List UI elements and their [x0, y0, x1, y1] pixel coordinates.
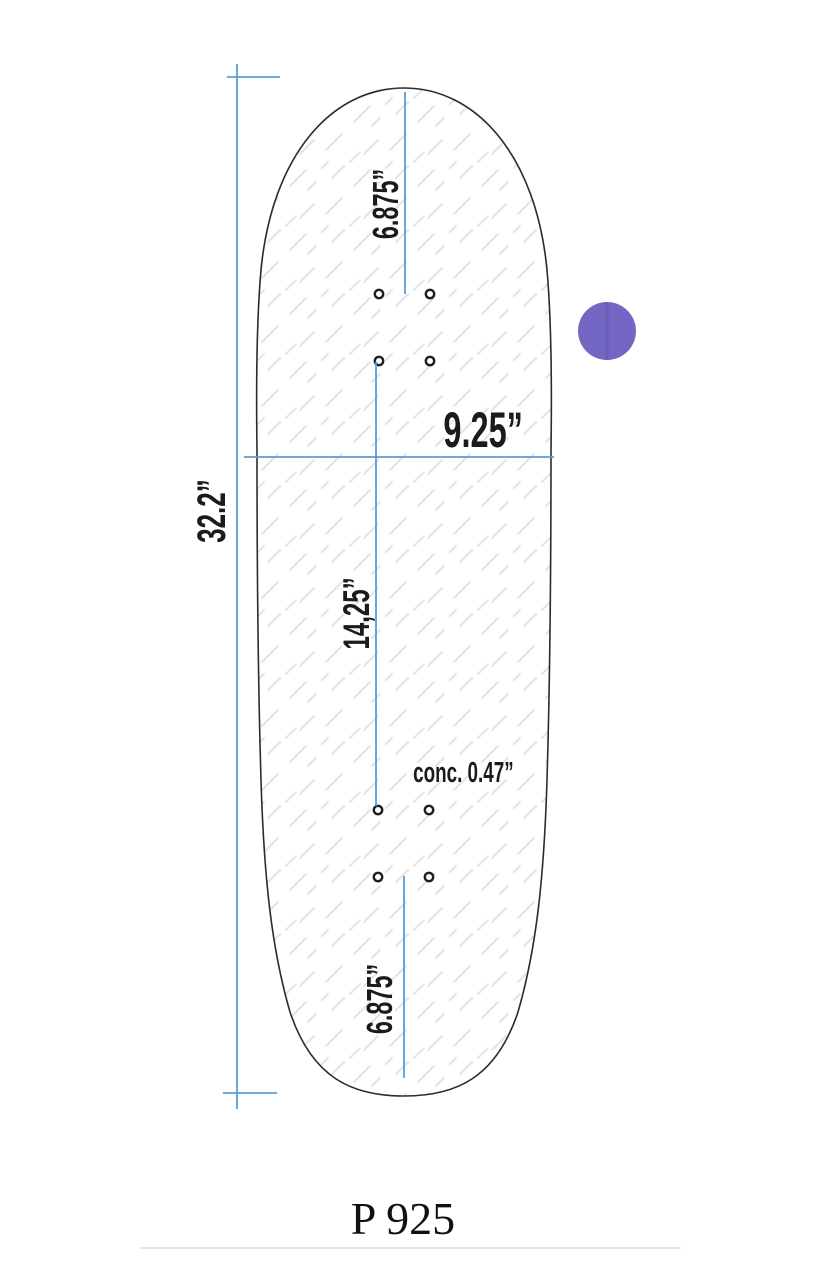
footer-divider [140, 1247, 681, 1249]
mounting-hole [375, 290, 383, 298]
nose-dimension-label: 6.875” [366, 124, 406, 284]
mounting-hole [425, 873, 433, 881]
wheelbase-dimension-value: 14,25” [338, 577, 375, 649]
mounting-hole [374, 873, 382, 881]
deck-spec-diagram: 6.875” 32.2” 9.25” 14,25” conc. 0.47” 6.… [0, 0, 823, 1266]
tail-dimension-label: 6.875” [360, 919, 400, 1079]
length-dimension-value: 32.2” [192, 479, 232, 543]
mounting-hole [426, 357, 434, 365]
width-dimension-label: 9.25” [383, 404, 583, 456]
mounting-hole [425, 806, 433, 814]
mounting-hole [426, 290, 434, 298]
nose-dimension-value: 6.875” [368, 169, 404, 239]
concave-dimension-label: conc. 0.47” [353, 757, 573, 789]
deck-technical-drawing [0, 0, 823, 1266]
product-code: P 925 [253, 1192, 553, 1244]
purple-color-swatch[interactable] [578, 302, 636, 360]
width-dimension-value: 9.25” [443, 405, 523, 455]
tail-dimension-value: 6.875” [362, 964, 398, 1034]
concave-dimension-value: conc. 0.47” [413, 759, 514, 788]
mounting-hole [374, 806, 382, 814]
wheelbase-dimension-label: 14,25” [335, 533, 377, 693]
length-dimension-label: 32.2” [190, 431, 234, 591]
